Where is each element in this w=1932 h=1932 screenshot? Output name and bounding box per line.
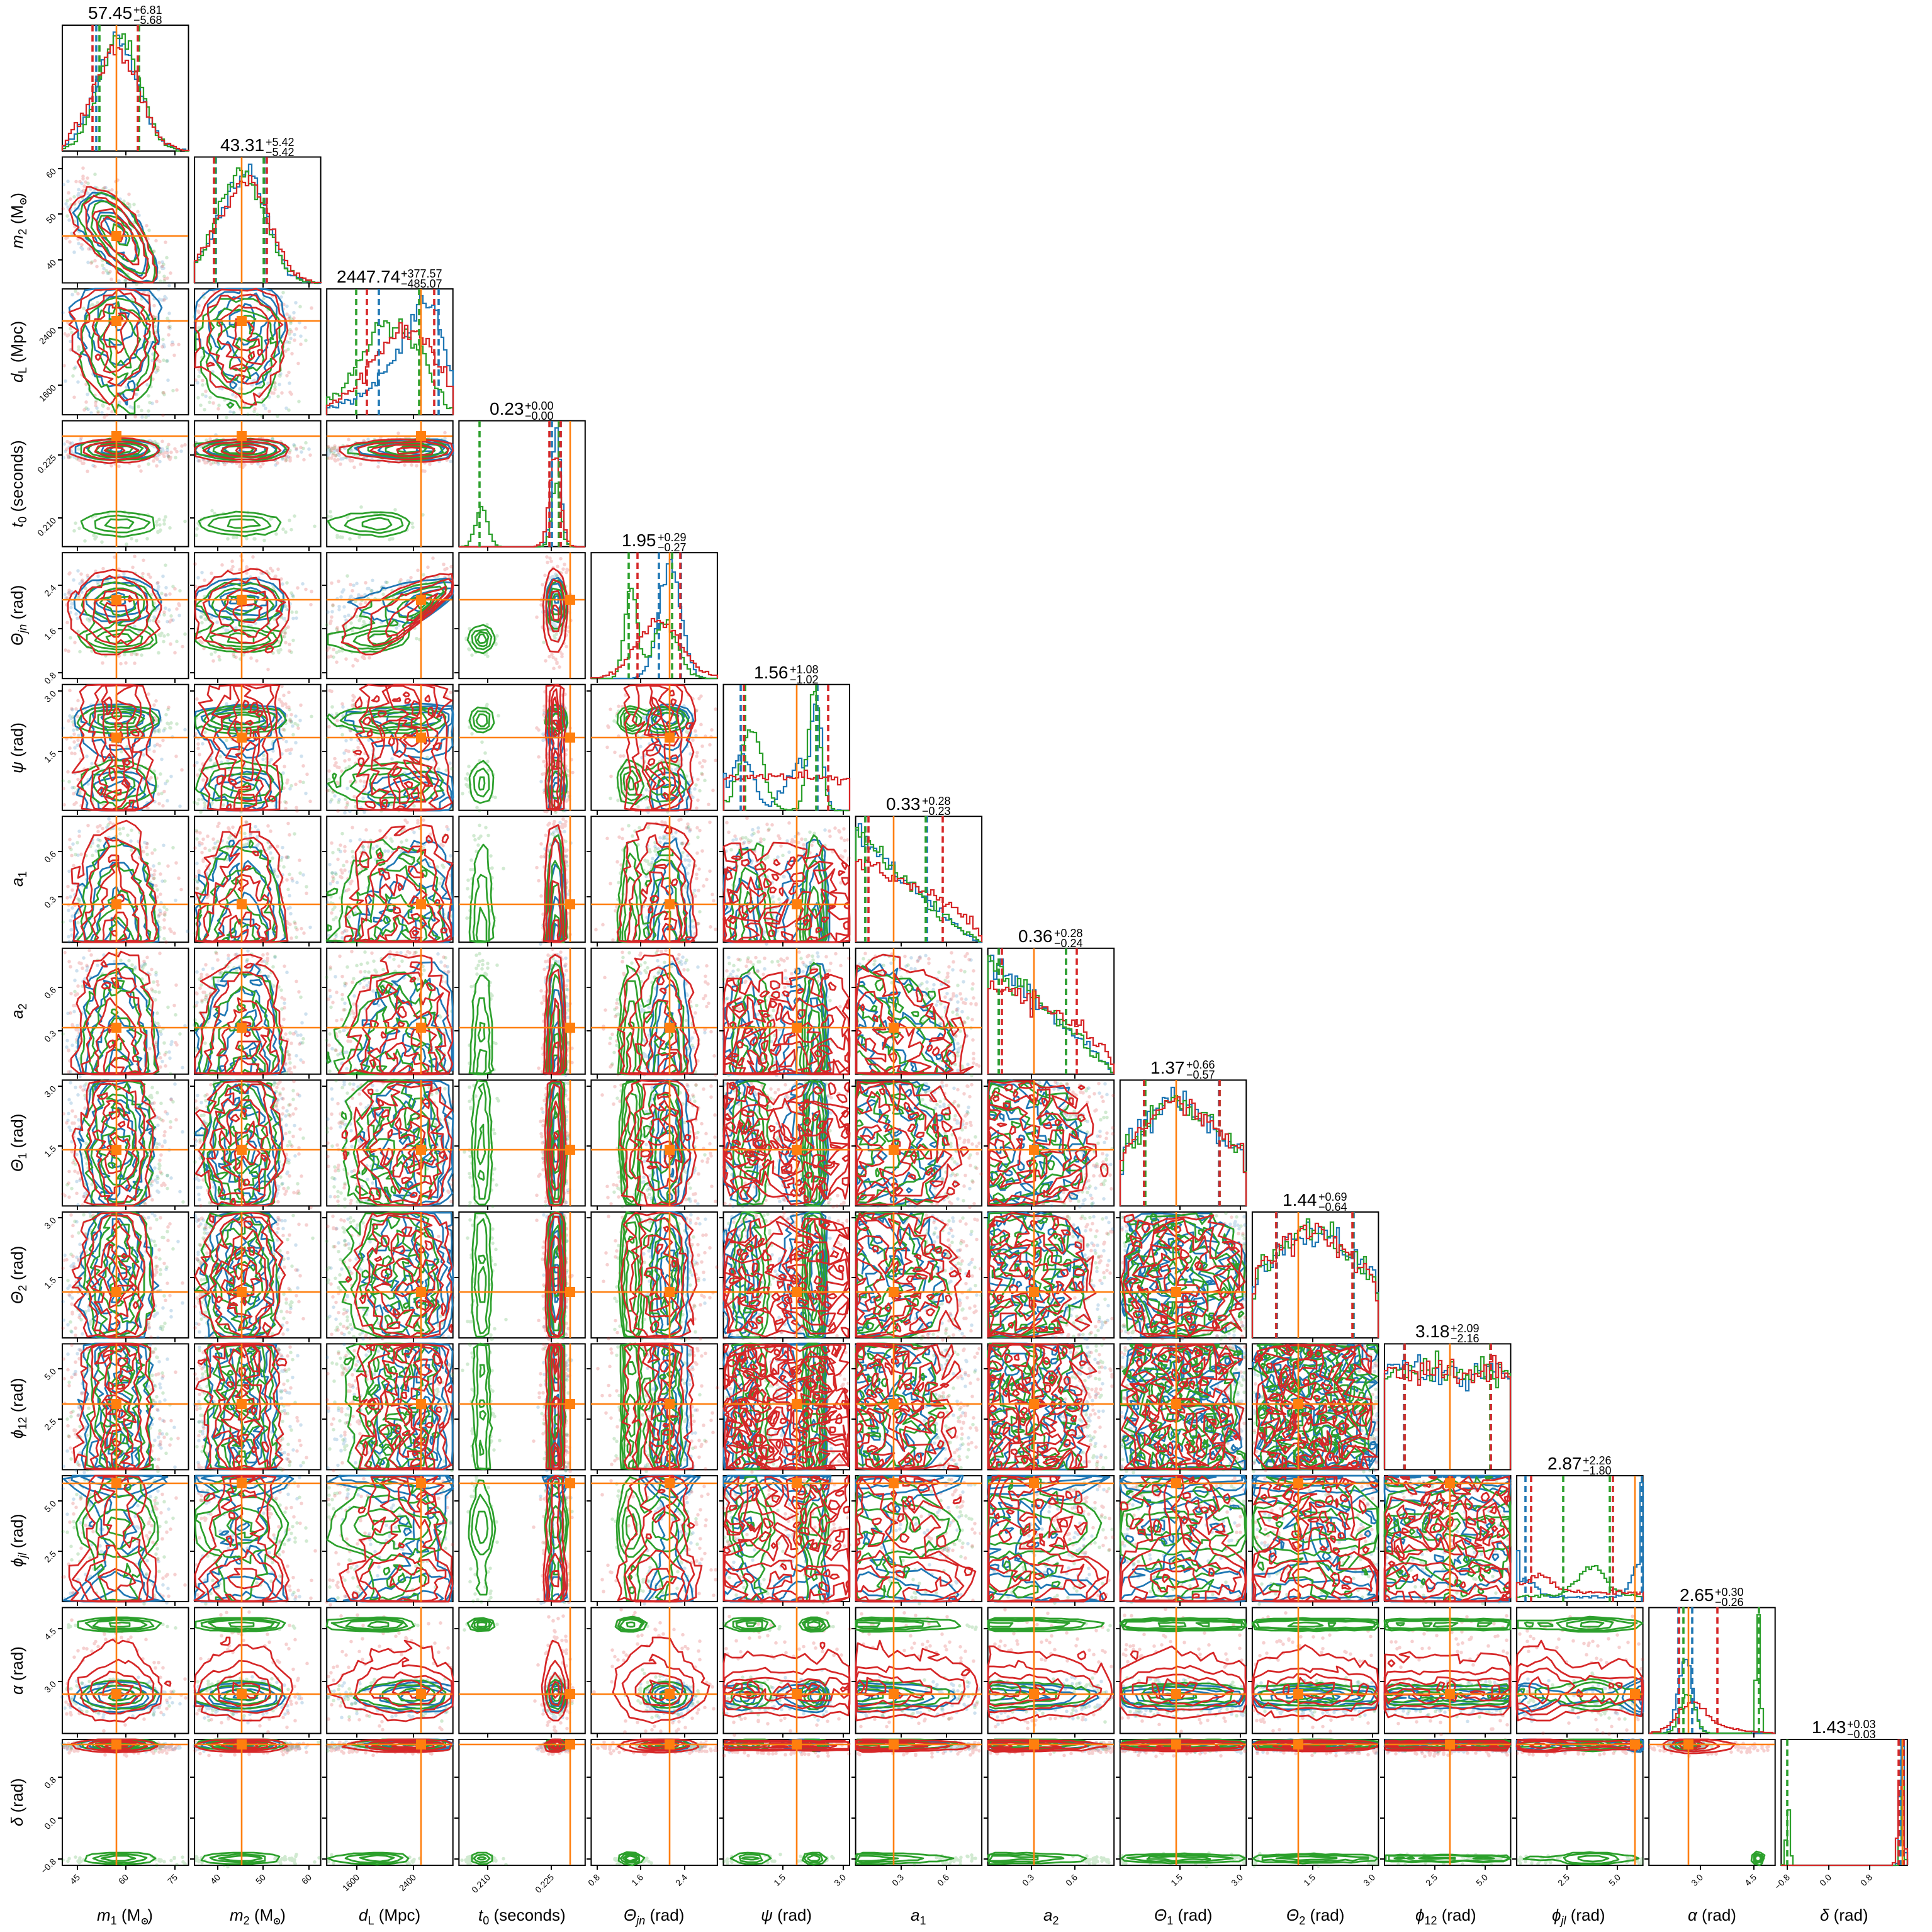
svg-text:−1.02: −1.02: [790, 673, 819, 686]
svg-text:1.44: 1.44: [1283, 1190, 1317, 1210]
svg-text:ψ (rad): ψ (rad): [761, 1906, 812, 1924]
svg-text:α (rad): α (rad): [8, 1646, 26, 1695]
svg-text:Θ1​ (rad): Θ1​ (rad): [1154, 1906, 1212, 1927]
svg-text:ϕjl​ (rad): ϕjl​ (rad): [8, 1514, 29, 1567]
svg-text:1.43: 1.43: [1812, 1717, 1846, 1737]
svg-text:t0​ (seconds): t0​ (seconds): [478, 1906, 566, 1927]
svg-text:ϕjl​ (rad): ϕjl​ (rad): [1552, 1906, 1605, 1927]
svg-text:ψ (rad): ψ (rad): [8, 722, 26, 773]
svg-text:−0.03: −0.03: [1847, 1728, 1876, 1741]
svg-text:43.31: 43.31: [220, 135, 264, 155]
svg-text:−0.00: −0.00: [525, 410, 554, 422]
svg-text:−0.57: −0.57: [1186, 1069, 1215, 1081]
svg-text:−485.07: −485.07: [401, 278, 442, 290]
svg-text:Θ1​ (rad): Θ1​ (rad): [8, 1114, 29, 1172]
svg-text:α (rad): α (rad): [1688, 1906, 1736, 1924]
svg-text:Θjn​ (rad): Θjn​ (rad): [624, 1906, 684, 1927]
svg-text:−0.26: −0.26: [1715, 1596, 1744, 1609]
svg-text:1.56: 1.56: [754, 663, 789, 682]
svg-text:57.45: 57.45: [88, 3, 132, 23]
svg-text:−5.68: −5.68: [133, 14, 162, 26]
svg-text:t0​ (seconds): t0​ (seconds): [8, 440, 29, 527]
svg-text:−0.27: −0.27: [658, 541, 687, 554]
svg-text:−5.42: −5.42: [266, 146, 295, 159]
svg-text:3.18: 3.18: [1415, 1322, 1450, 1341]
svg-text:−0.64: −0.64: [1318, 1201, 1347, 1213]
svg-text:1.37: 1.37: [1150, 1058, 1185, 1077]
svg-text:0.33: 0.33: [886, 794, 921, 814]
svg-text:0.36: 0.36: [1018, 926, 1053, 946]
svg-text:2447.74: 2447.74: [337, 267, 400, 286]
svg-text:1.95: 1.95: [622, 531, 656, 550]
svg-text:Θ2​ (rad): Θ2​ (rad): [8, 1246, 29, 1304]
svg-text:−0.23: −0.23: [922, 805, 951, 817]
svg-text:0.23: 0.23: [490, 399, 524, 418]
svg-text:−1.80: −1.80: [1583, 1464, 1612, 1477]
svg-text:2.65: 2.65: [1680, 1585, 1714, 1605]
svg-text:δ (rad): δ (rad): [8, 1778, 26, 1826]
svg-text:Θ2​ (rad): Θ2​ (rad): [1286, 1906, 1344, 1927]
svg-text:2.87: 2.87: [1547, 1454, 1582, 1473]
svg-text:−0.24: −0.24: [1054, 937, 1083, 950]
svg-text:Θjn​ (rad): Θjn​ (rad): [8, 585, 29, 646]
svg-text:δ (rad): δ (rad): [1820, 1906, 1868, 1924]
svg-text:−2.16: −2.16: [1451, 1332, 1480, 1345]
